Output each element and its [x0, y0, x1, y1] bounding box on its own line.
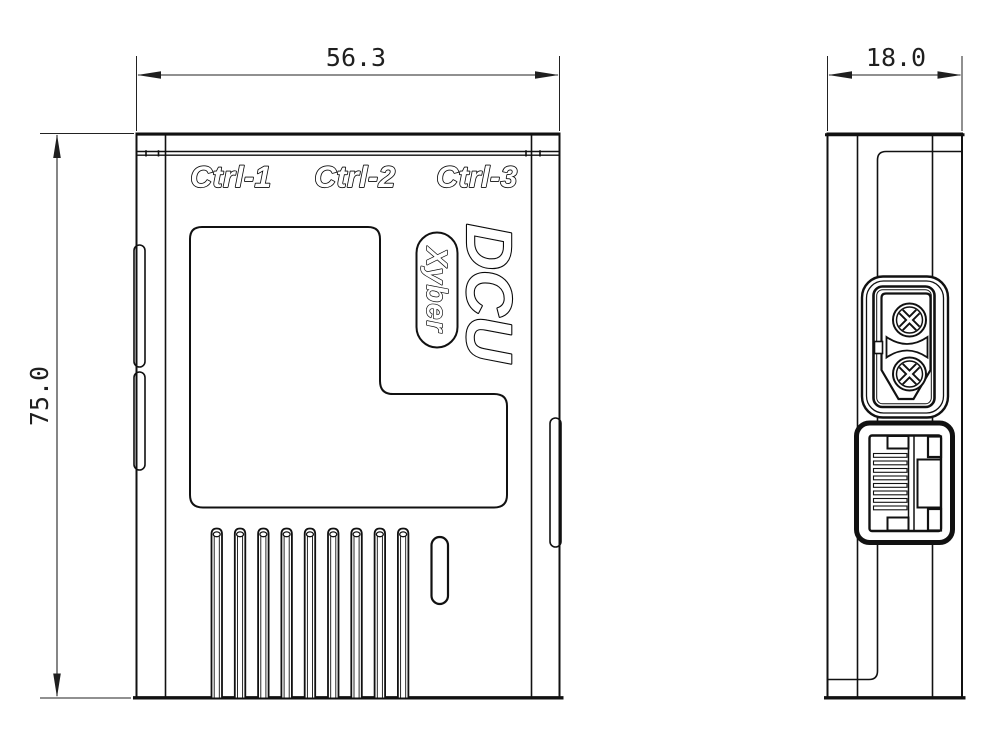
- vent-slot: [328, 529, 339, 698]
- vent-slot: [235, 529, 246, 698]
- rj45-ethernet-port: [857, 423, 953, 543]
- arrowhead-bottom: [53, 674, 61, 698]
- arrowhead-right: [535, 71, 559, 78]
- arrowhead-left: [828, 71, 852, 78]
- rj45-corner-block-top: [928, 437, 941, 458]
- dimension-front-height: 75.0: [25, 134, 134, 699]
- drawing-sheet: Ctrl-1 Ctrl-2 Ctrl-3 DCU Xyber: [0, 0, 1000, 737]
- side-view: [824, 134, 966, 698]
- arrowhead-top: [53, 134, 61, 158]
- dimension-side-depth-value: 18.0: [866, 43, 926, 72]
- vent-slot: [305, 529, 316, 698]
- mounting-slot: [432, 537, 449, 604]
- front-view: Ctrl-1 Ctrl-2 Ctrl-3 DCU Xyber: [133, 134, 564, 698]
- dimension-front-width: 56.3: [137, 43, 560, 131]
- dimension-front-width-value: 56.3: [326, 43, 386, 72]
- port-label-1: Ctrl-1: [190, 161, 271, 194]
- port-label-2: Ctrl-2: [314, 161, 395, 194]
- rj45-top-tab: [888, 436, 909, 449]
- vent-grille: [212, 529, 409, 698]
- vent-slot: [398, 529, 409, 698]
- xt30-pin-top: [893, 304, 926, 337]
- rj45-corner-block-bottom: [928, 509, 941, 531]
- vent-slot: [351, 529, 362, 698]
- vent-slot: [212, 529, 223, 698]
- arrowhead-right: [938, 71, 962, 78]
- dimension-side-depth: 18.0: [828, 43, 963, 131]
- port-label-3: Ctrl-3: [436, 161, 517, 194]
- vent-slot: [375, 529, 386, 698]
- vent-slot: [258, 529, 269, 698]
- vent-slot: [281, 529, 292, 698]
- xt30-pin-bottom: [893, 358, 926, 391]
- technical-drawing: Ctrl-1 Ctrl-2 Ctrl-3 DCU Xyber: [0, 0, 1000, 737]
- product-name-label: DCU: [453, 224, 525, 364]
- arrowhead-left: [137, 71, 161, 78]
- rj45-bottom-tab: [888, 518, 909, 531]
- xt30-key-tab: [875, 342, 883, 354]
- dimension-front-height-value: 75.0: [25, 366, 54, 426]
- brand-label: Xyber: [420, 245, 452, 333]
- xt30-power-connector: [862, 277, 948, 418]
